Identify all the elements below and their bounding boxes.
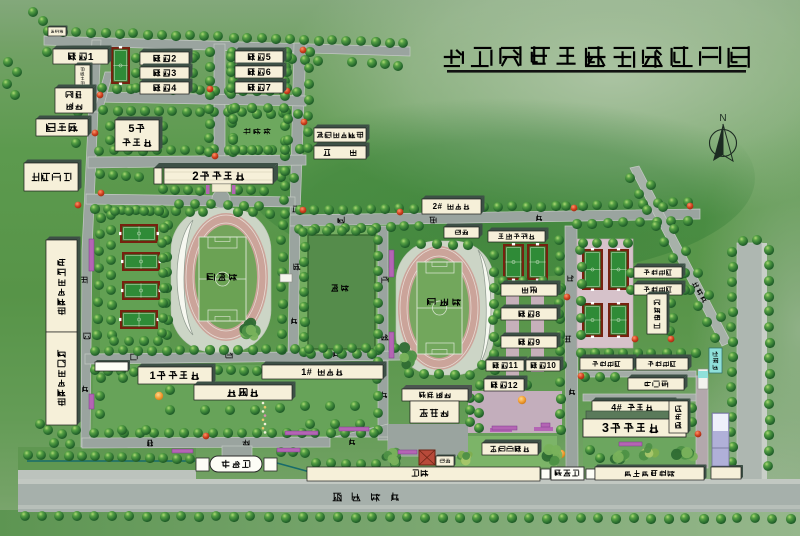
- svg-text:5: 5: [266, 52, 271, 62]
- svg-text:1: 1: [301, 367, 306, 377]
- svg-text:3: 3: [171, 68, 176, 78]
- svg-text:7: 7: [266, 83, 271, 93]
- svg-text:2: 2: [513, 380, 518, 390]
- svg-text:4: 4: [171, 83, 176, 93]
- svg-text:N: N: [719, 113, 726, 124]
- svg-text:9: 9: [535, 337, 540, 347]
- svg-text:8: 8: [535, 309, 540, 319]
- svg-text:2: 2: [171, 54, 176, 64]
- svg-text:5: 5: [128, 123, 134, 135]
- svg-text:#: #: [307, 367, 312, 377]
- svg-text:1: 1: [88, 52, 94, 63]
- svg-text:1: 1: [150, 370, 156, 382]
- svg-text:#: #: [437, 202, 442, 211]
- svg-text:3: 3: [602, 421, 609, 435]
- svg-text:1: 1: [513, 361, 518, 370]
- svg-text:2: 2: [192, 171, 198, 183]
- svg-text:0: 0: [551, 361, 556, 370]
- svg-text:6: 6: [266, 67, 271, 77]
